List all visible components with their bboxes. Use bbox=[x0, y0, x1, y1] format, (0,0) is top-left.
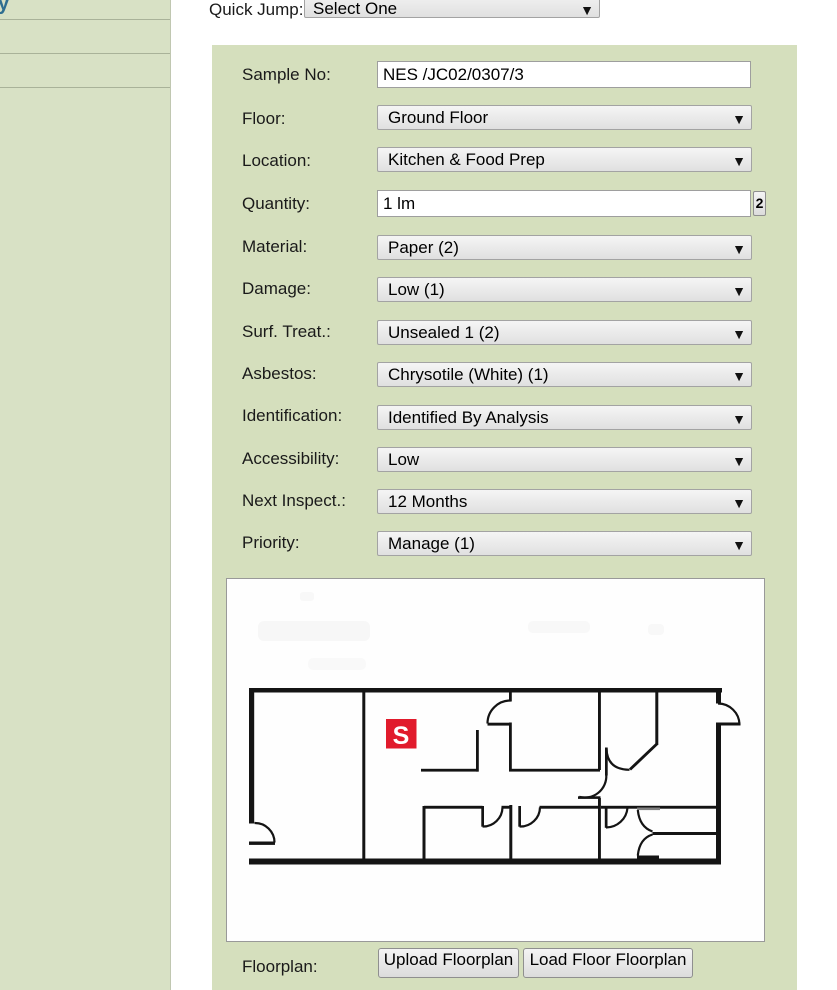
svg-text:S: S bbox=[393, 722, 410, 750]
